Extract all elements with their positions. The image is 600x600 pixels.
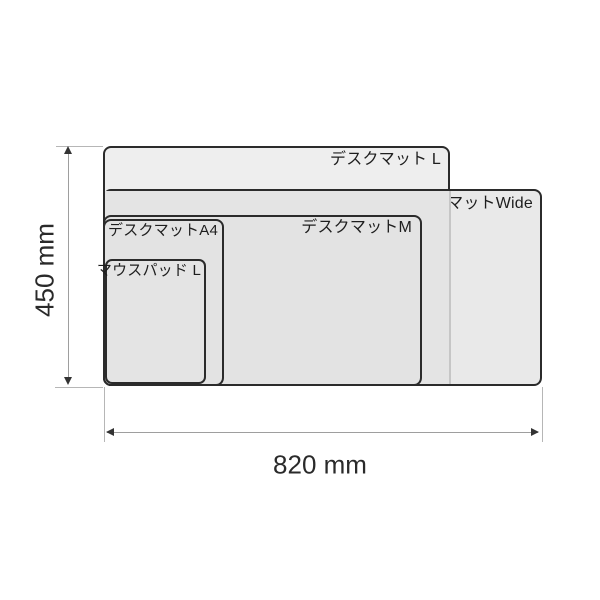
mouse-pad-l-rect: マウスパッド L — [105, 259, 206, 384]
desk-mat-a4-label: デスクマットA4 — [108, 223, 218, 240]
desk-mat-size-diagram: デスクマット L デスクマットWide デスクマットM デスクマットA4 マウス… — [0, 0, 600, 600]
arrow-down-icon — [64, 377, 72, 385]
desk-mat-m-label: デスクマットM — [301, 219, 412, 237]
extension-line-left-vertical — [104, 387, 105, 442]
mouse-pad-l-label: マウスパッド L — [97, 263, 201, 280]
extension-line-bottom — [55, 387, 103, 388]
width-dimension-line — [107, 432, 538, 433]
width-dimension-label: 820 mm — [273, 450, 367, 481]
desk-mat-l-label: デスクマット L — [330, 151, 441, 169]
desk-mat-l-edge-seen-through — [449, 191, 451, 384]
arrow-up-icon — [64, 146, 72, 154]
extension-line-right-vertical — [542, 387, 543, 442]
height-dimension-label: 450 mm — [30, 223, 61, 317]
arrow-right-icon — [531, 428, 539, 436]
arrow-left-icon — [106, 428, 114, 436]
height-dimension-line — [68, 149, 69, 383]
